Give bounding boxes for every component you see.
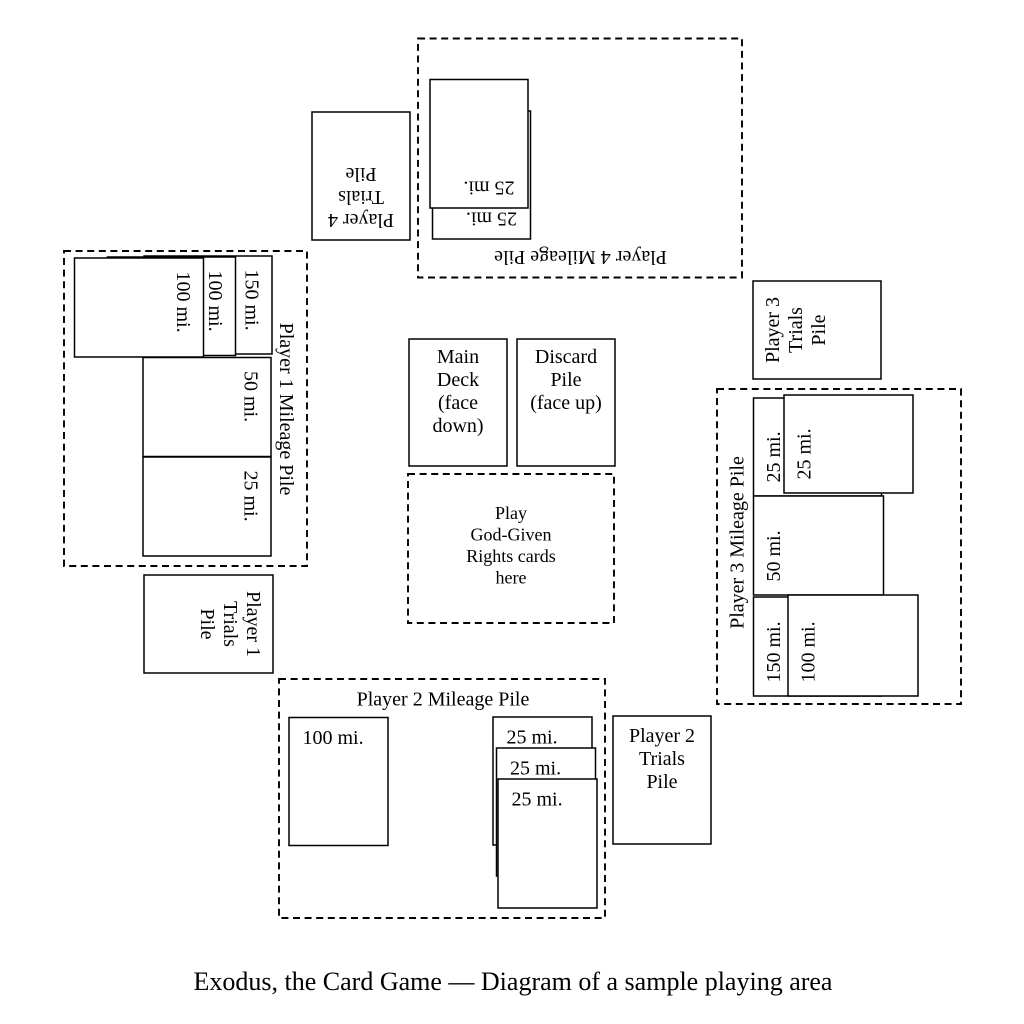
- svg-text:Pile: Pile: [550, 369, 581, 391]
- svg-text:25 mi.: 25 mi.: [240, 471, 262, 522]
- svg-text:down): down): [432, 415, 483, 437]
- svg-text:Deck: Deck: [437, 369, 479, 391]
- svg-text:25 mi.: 25 mi.: [794, 428, 816, 479]
- svg-text:100 mi.: 100 mi.: [798, 621, 820, 682]
- svg-text:Player 3 Mileage Pile: Player 3 Mileage Pile: [727, 456, 749, 629]
- svg-text:Pile: Pile: [345, 163, 376, 185]
- svg-text:25 mi.: 25 mi.: [510, 758, 561, 780]
- svg-text:Rights cards: Rights cards: [466, 546, 556, 566]
- svg-text:Trials: Trials: [219, 601, 241, 647]
- svg-text:Player 2: Player 2: [629, 725, 695, 747]
- svg-text:Trials: Trials: [338, 186, 384, 208]
- svg-text:Pile: Pile: [646, 771, 677, 793]
- svg-text:here: here: [496, 568, 527, 588]
- svg-text:Exodus, the Card Game — Diagra: Exodus, the Card Game — Diagram of a sam…: [194, 967, 833, 996]
- svg-text:25 mi.: 25 mi.: [512, 789, 563, 811]
- svg-text:Player 3: Player 3: [762, 297, 784, 363]
- svg-text:Player 4 Mileage Pile: Player 4 Mileage Pile: [494, 246, 667, 268]
- svg-text:25 mi.: 25 mi.: [466, 208, 517, 230]
- svg-text:100 mi.: 100 mi.: [204, 271, 226, 332]
- svg-text:100 mi.: 100 mi.: [303, 727, 364, 749]
- svg-text:50 mi.: 50 mi.: [763, 530, 785, 581]
- svg-text:Trials: Trials: [785, 307, 807, 353]
- svg-text:Player 1: Player 1: [242, 591, 264, 657]
- svg-text:Player 1 Mileage Pile: Player 1 Mileage Pile: [275, 323, 297, 496]
- svg-text:Play: Play: [495, 503, 527, 523]
- svg-text:150 mi.: 150 mi.: [763, 621, 785, 682]
- svg-text:Discard: Discard: [535, 346, 597, 368]
- svg-text:Player 2 Mileage Pile: Player 2 Mileage Pile: [357, 689, 530, 711]
- svg-text:Pile: Pile: [196, 608, 218, 639]
- svg-text:Player 4: Player 4: [328, 209, 394, 231]
- svg-text:(face: (face: [438, 392, 478, 414]
- svg-text:Pile: Pile: [808, 314, 830, 345]
- svg-text:God-Given: God-Given: [471, 525, 552, 545]
- svg-text:100 mi.: 100 mi.: [172, 272, 194, 333]
- svg-text:150 mi.: 150 mi.: [241, 270, 263, 331]
- svg-text:25 mi.: 25 mi.: [763, 431, 785, 482]
- svg-text:(face up): (face up): [530, 392, 602, 414]
- svg-text:Main: Main: [437, 346, 479, 368]
- svg-text:25 mi.: 25 mi.: [463, 177, 514, 199]
- svg-text:Trials: Trials: [639, 748, 685, 770]
- svg-text:50 mi.: 50 mi.: [240, 371, 262, 422]
- svg-text:25 mi.: 25 mi.: [507, 727, 558, 749]
